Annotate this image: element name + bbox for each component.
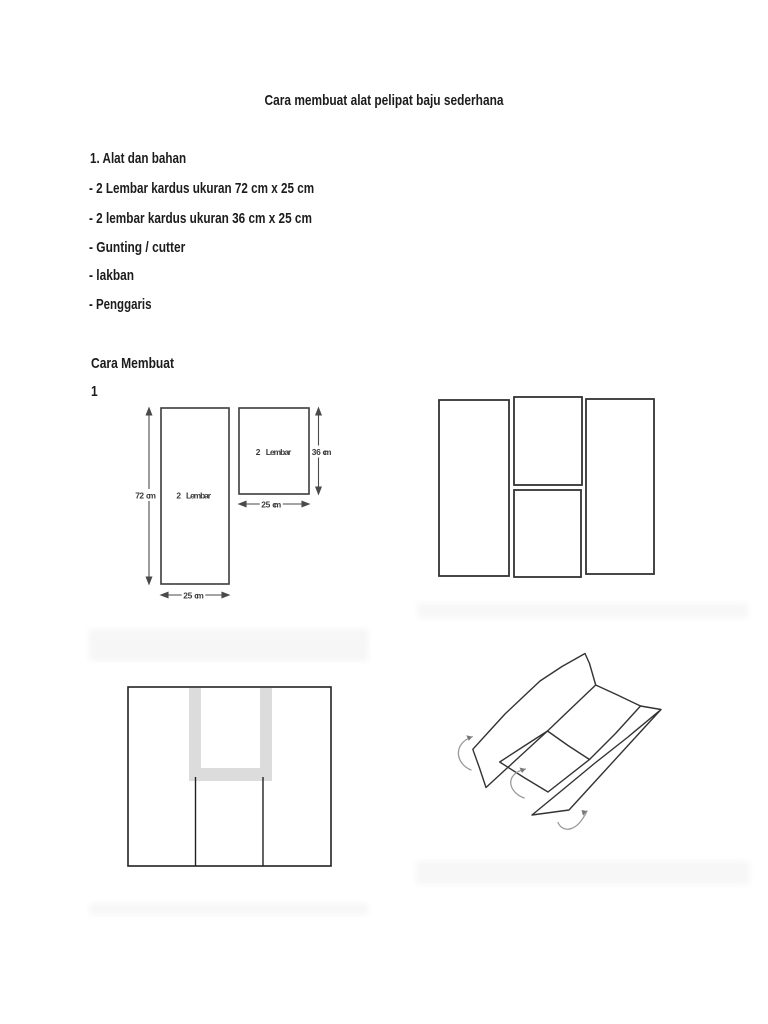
svg-text:Lembar: Lembar xyxy=(186,490,212,500)
svg-text:Lembar: Lembar xyxy=(266,447,292,457)
svg-text:36: 36 xyxy=(312,447,321,457)
svg-text:25: 25 xyxy=(261,499,270,509)
svg-text:2: 2 xyxy=(256,447,261,457)
svg-text:25: 25 xyxy=(183,590,192,600)
svg-text:72: 72 xyxy=(135,490,144,500)
svg-text:cm: cm xyxy=(323,447,332,457)
svg-text:cm: cm xyxy=(146,490,156,500)
svg-text:2: 2 xyxy=(176,490,181,500)
svg-text:cm: cm xyxy=(194,590,204,600)
svg-text:cm: cm xyxy=(272,499,281,509)
